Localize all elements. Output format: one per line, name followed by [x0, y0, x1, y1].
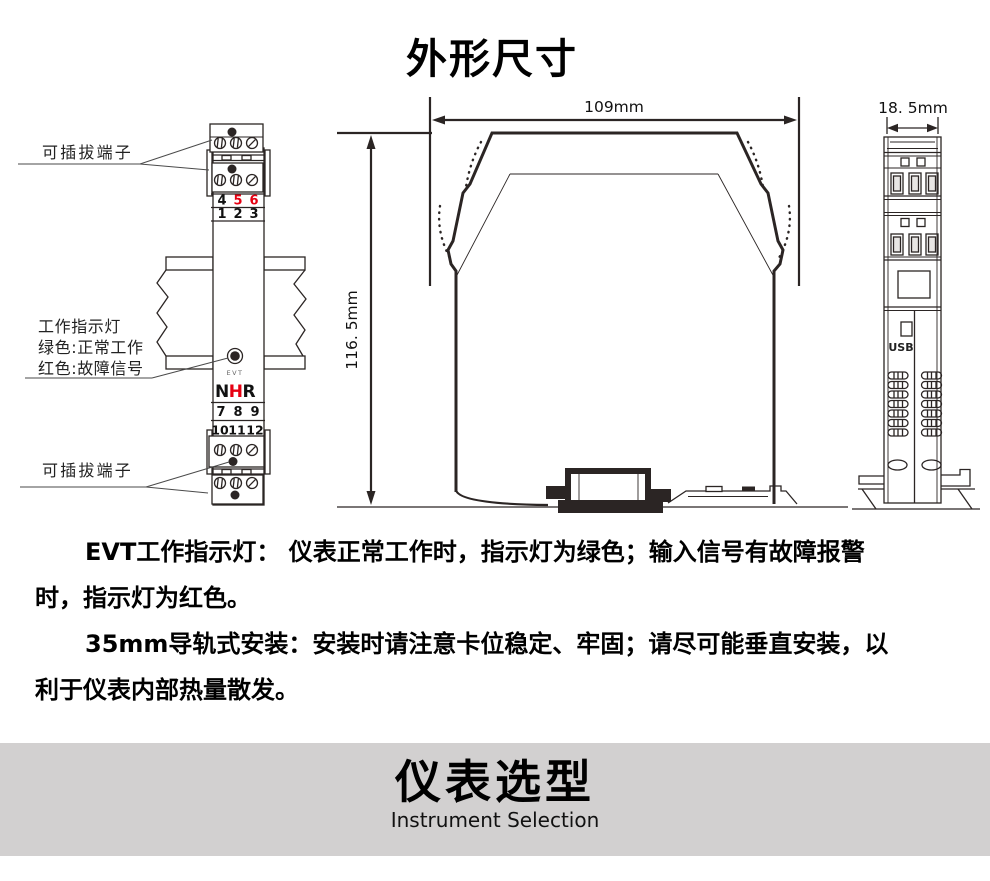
svg-text:9: 9 — [250, 405, 259, 420]
terminal-slots-bottom — [891, 234, 938, 255]
datasheet-page: 外形尺寸 — [0, 0, 990, 881]
label-pluggable-terminal-top: 可插拔端子 — [42, 143, 133, 162]
dimension-height-116-5: 116. 5mm — [337, 133, 848, 507]
svg-text:工作指示灯: 工作指示灯 — [38, 317, 121, 336]
housing-outline — [448, 133, 783, 504]
svg-text:绿色:正常工作: 绿色:正常工作 — [38, 338, 144, 357]
section-banner: 仪表选型 Instrument Selection — [0, 743, 990, 856]
profile-body — [884, 137, 941, 503]
dimension-width-109: 109mm — [430, 97, 799, 286]
terminal-numbers-bottom: 7 8 9 10 11 12 — [211, 403, 265, 440]
svg-text:116. 5mm: 116. 5mm — [343, 290, 361, 370]
side-view: 109mm 116. 5mm — [337, 97, 848, 513]
svg-text:10: 10 — [211, 423, 229, 438]
evt-label: EVT — [226, 369, 243, 377]
svg-text:3: 3 — [249, 207, 258, 222]
page-title: 外形尺寸 — [406, 35, 578, 83]
nhr-logo: NHR — [215, 382, 255, 402]
terminal-slots-top — [891, 173, 938, 194]
front-view: 4 5 6 1 2 3 EVT NHR 7 8 9 10 11 12 — [18, 124, 306, 505]
profile-view: 18. 5mm — [852, 99, 980, 509]
svg-text:12: 12 — [246, 423, 263, 438]
note-evt-indicator: EVT工作指示灯： 仪表正常工作时，指示灯为绿色；输入信号有故障报警时，指示灯为… — [35, 529, 895, 621]
svg-text:2: 2 — [233, 207, 242, 222]
notes-section: EVT工作指示灯： 仪表正常工作时，指示灯为绿色；输入信号有故障报警时，指示灯为… — [35, 529, 895, 713]
svg-text:8: 8 — [233, 405, 242, 420]
svg-text:红色:故障信号: 红色:故障信号 — [38, 359, 144, 378]
outline-dimension-diagram: 外形尺寸 — [0, 0, 990, 520]
banner-subtitle: Instrument Selection — [0, 808, 990, 832]
svg-text:18. 5mm: 18. 5mm — [878, 99, 948, 117]
usb-label: USB — [888, 341, 913, 354]
note-rail-mounting: 35mm导轨式安装：安装时请注意卡位稳定、牢固；请尽可能垂直安装，以利于仪表内部… — [35, 621, 895, 713]
terminal-block-top — [207, 124, 270, 196]
svg-text:109mm: 109mm — [584, 98, 644, 116]
svg-text:11: 11 — [228, 423, 245, 438]
label-pluggable-terminal-bottom: 可插拔端子 — [42, 461, 133, 480]
svg-text:7: 7 — [216, 405, 225, 420]
indicator-light-icon — [228, 349, 243, 364]
svg-text:1: 1 — [217, 207, 226, 222]
terminal-block-bottom — [207, 430, 270, 504]
terminal-numbers-top: 4 5 6 1 2 3 — [211, 194, 265, 223]
dimension-width-18-5: 18. 5mm — [878, 99, 948, 134]
banner-title: 仪表选型 — [0, 743, 990, 808]
